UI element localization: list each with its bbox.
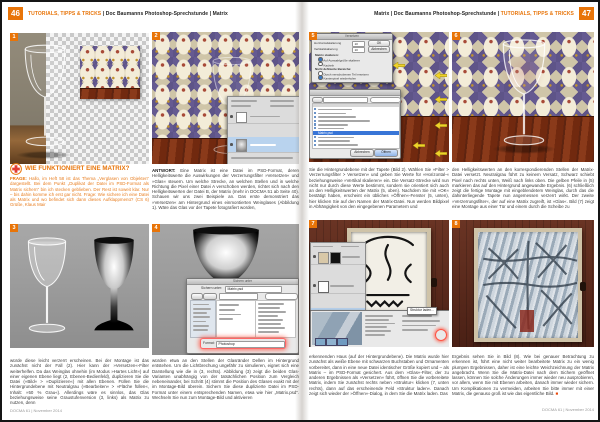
figure-8-glass-result: 8 xyxy=(452,220,594,347)
selected-file-row: Matrix.psd xyxy=(313,131,399,135)
sidebar-favorites xyxy=(190,300,216,338)
location-dropdown xyxy=(219,293,258,300)
format-row-highlight: Format: Photoshop xyxy=(201,339,285,348)
preview-thumbnail xyxy=(315,338,326,346)
layer-name-bar xyxy=(250,116,280,118)
article-heading: WIE FUNKTIONIERT EINE MATRIX? xyxy=(25,165,129,172)
yellow-arrow-icon xyxy=(413,142,425,149)
figure-tab: 3 xyxy=(10,224,18,232)
cancel-button: Abbrechen xyxy=(368,46,390,53)
open-dialog: Matrix.psd Abbrechen Öffnen xyxy=(309,89,401,159)
open-button: Öffnen xyxy=(374,149,398,157)
question-paragraph: FRAGE: Hallo, im Heft 58 ist das Thema „… xyxy=(10,176,149,208)
layer-thumbnail xyxy=(318,252,329,264)
red-door-patch xyxy=(520,310,534,332)
body-paragraph: den Helligkeitswerten an den korrespondi… xyxy=(452,167,594,209)
figure-6-final-montage: 6 xyxy=(452,32,594,162)
figure-tab: 8 xyxy=(452,220,460,228)
radio-option: Kantenpixel wiederholen xyxy=(318,75,356,81)
wine-glass-photo xyxy=(12,37,78,159)
lock-controls xyxy=(231,105,251,107)
grayscale-glass xyxy=(16,230,78,345)
page-number-right: 47 xyxy=(579,7,594,20)
cancel-button: Abbrechen xyxy=(350,149,374,157)
radio-icon xyxy=(318,75,323,80)
body-paragraph: erkennenden Haus (auf der Hintergrundebe… xyxy=(309,354,449,396)
baseboard-wood xyxy=(80,88,140,99)
body-paragraph: Ergebnis sehen Sie in Bild (8). Wie bei … xyxy=(452,354,594,396)
door-handle xyxy=(431,278,437,287)
layer-row-weinglas-selected xyxy=(228,137,299,153)
answer-paragraph: ANTWORT: Eine Matrix ist eine Datei im P… xyxy=(152,168,299,210)
layer-thumbnail xyxy=(236,112,247,123)
radio-label: Kantenpixel wiederholen xyxy=(323,77,356,81)
yellow-arrow-icon xyxy=(435,150,447,157)
save-as-label: Sichern unter: xyxy=(201,286,222,290)
file-icon xyxy=(314,123,316,125)
wallpaper-texture xyxy=(80,46,140,88)
layer-name-bar xyxy=(342,256,360,258)
file-icon xyxy=(314,140,316,142)
figure-1-glass-transparency: 1 xyxy=(10,33,149,164)
file-list-column xyxy=(255,300,296,338)
running-head-left-rest: | Doc Baumanns Photoshop-Sprechstunde | … xyxy=(101,11,228,17)
opacity-control xyxy=(270,100,294,102)
door-window-frame xyxy=(474,228,582,342)
layer-row xyxy=(311,250,365,265)
search-field xyxy=(265,293,298,300)
file-icon xyxy=(314,112,316,114)
layer-name-bar xyxy=(250,144,276,146)
article-end-mark: ■ xyxy=(556,391,559,396)
footer-left: DOCMA 61 | November 2014 xyxy=(10,408,62,413)
highlight-ring xyxy=(435,329,447,341)
figure-2-montage: 2 xyxy=(152,32,299,164)
first-aid-cross-icon xyxy=(10,162,22,174)
wine-glass-montage xyxy=(488,34,560,156)
yellow-arrow-icon xyxy=(435,72,447,79)
figure-7-glass-filter-setup: Struktur laden... 7 xyxy=(309,220,449,347)
answer-label: ANTWORT: xyxy=(152,168,175,173)
panel-footer-controls xyxy=(231,157,293,159)
fill-control xyxy=(270,105,294,107)
eye-icon xyxy=(230,115,233,118)
file-icon xyxy=(314,144,316,146)
figure-tab: 4 xyxy=(152,224,160,232)
file-icon xyxy=(314,136,316,138)
open-dialog-titlebar xyxy=(310,90,400,96)
filename-field: Matrix.psd xyxy=(225,286,282,293)
figure-tab: 6 xyxy=(452,32,460,40)
layers-panel xyxy=(310,242,366,310)
preview-thumbnail xyxy=(326,338,337,346)
magazine-spread: 46 TUTORIALS, TIPPS & TRICKS | Doc Bauma… xyxy=(0,0,600,422)
question-label: FRAGE: xyxy=(10,176,27,181)
format-label: Format: xyxy=(203,341,215,345)
save-dialog-titlebar: Sichern unter xyxy=(187,279,298,285)
glass-layer-thumbnail xyxy=(236,139,247,152)
view-buttons xyxy=(203,293,217,300)
figure-3-glass-variants: 3 xyxy=(10,224,149,348)
displace-dialog: Versetzen Horizontalskalierung 10 OK Ver… xyxy=(311,33,393,83)
running-head-left-section: TUTORIALS, TIPPS & TRICKS xyxy=(28,11,101,17)
horizontal-scale-label: Horizontalskalierung xyxy=(314,41,341,45)
figure-tab: 5 xyxy=(309,32,317,40)
engraving-thumbnail xyxy=(318,281,329,293)
figure-4-save-matrix: Sichern unter Sichern unter: Matrix.psd xyxy=(152,224,299,355)
folder-column xyxy=(216,300,256,338)
yellow-arrow-icon xyxy=(435,96,447,103)
load-texture-flyout: Struktur laden... xyxy=(407,307,437,315)
filter-list xyxy=(364,313,398,344)
save-dialog: Sichern unter Sichern unter: Matrix.psd xyxy=(186,278,299,354)
preview-thumbnail xyxy=(337,338,348,346)
figure-tab: 1 xyxy=(10,33,18,41)
file-icon xyxy=(314,127,316,129)
yellow-arrow-icon xyxy=(435,122,447,129)
file-icon xyxy=(314,120,316,122)
vertical-scale-label: Vertikalskalierung xyxy=(314,47,338,51)
glass-filter-dialog: Struktur laden... xyxy=(310,310,449,347)
figure-tab: 2 xyxy=(152,32,160,40)
vertical-scale-field: 10 xyxy=(352,47,365,53)
question-text: Hallo, im Heft 58 ist das Thema „Verglas… xyxy=(10,176,149,207)
file-icon xyxy=(314,116,316,118)
eye-icon xyxy=(313,255,316,258)
footer-right: DOCMA 61 | November 2014 xyxy=(454,407,594,412)
matrix-glass xyxy=(84,230,144,345)
format-dropdown: Photoshop xyxy=(216,341,285,348)
figure-tab: 7 xyxy=(309,220,317,228)
body-paragraph: würden etwa an den Stellen der Glasrände… xyxy=(152,358,299,400)
running-head-right-prefix: Matrix | Doc Baumanns Photoshop-Sprechst… xyxy=(374,11,501,17)
layers-panel xyxy=(227,96,299,164)
yellow-arrow-icon xyxy=(393,62,405,69)
running-head-right-section: TUTORIALS, TIPPS & TRICKS xyxy=(501,11,574,17)
horizontal-scale-field: 10 xyxy=(352,41,365,47)
opacity-control xyxy=(341,246,359,248)
eye-icon xyxy=(313,284,316,287)
layer-row xyxy=(311,279,365,294)
page-number-left: 46 xyxy=(8,7,23,20)
answer-text: Eine Matrix ist eine Datei im PSD-Format… xyxy=(152,168,299,210)
mask-thumbnail xyxy=(330,252,341,264)
eye-icon xyxy=(230,143,233,146)
list-header xyxy=(313,104,399,108)
running-head-left: TUTORIALS, TIPPS & TRICKS | Doc Baumanns… xyxy=(28,11,228,17)
layer-row-adjustment xyxy=(228,110,299,124)
wallpaper-sample-card xyxy=(80,46,140,98)
layer-name-bar xyxy=(330,285,354,287)
file-list: Matrix.psd xyxy=(312,103,400,149)
body-paragraph: würde diese leicht verzerrt erscheinen. … xyxy=(10,358,149,406)
file-icon xyxy=(314,108,316,110)
blend-mode-dropdown xyxy=(231,100,257,102)
running-head-right: Matrix | Doc Baumanns Photoshop-Sprechst… xyxy=(302,11,574,17)
body-text: Ergebnis sehen Sie in Bild (8). Wie bei … xyxy=(452,354,594,396)
blend-mode-dropdown xyxy=(313,246,333,248)
figure-5-displace-dialogs: Versetzen Horizontalskalierung 10 OK Ver… xyxy=(309,32,449,162)
back-forward-buttons xyxy=(191,293,203,300)
body-paragraph: Sie die Hintergrundebene mit der Tapete … xyxy=(309,167,449,209)
door-handle xyxy=(580,282,586,291)
